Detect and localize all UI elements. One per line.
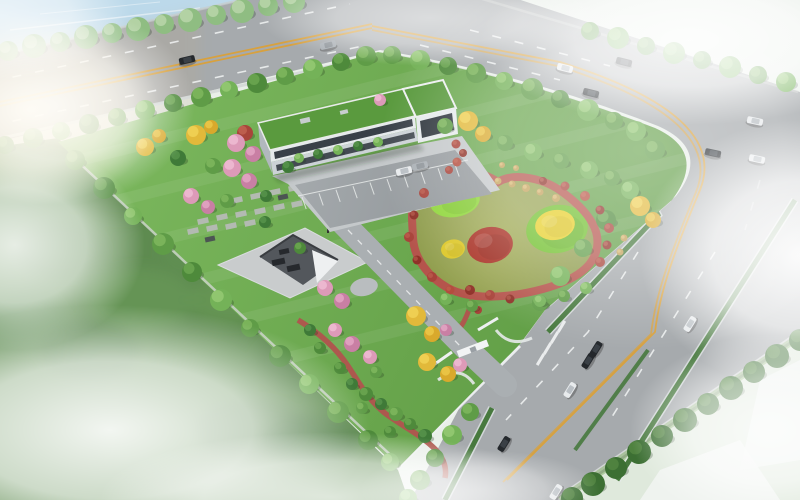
scene-canvas [0, 0, 800, 500]
shrub [413, 256, 422, 265]
aerial-site-rendering [0, 0, 800, 500]
